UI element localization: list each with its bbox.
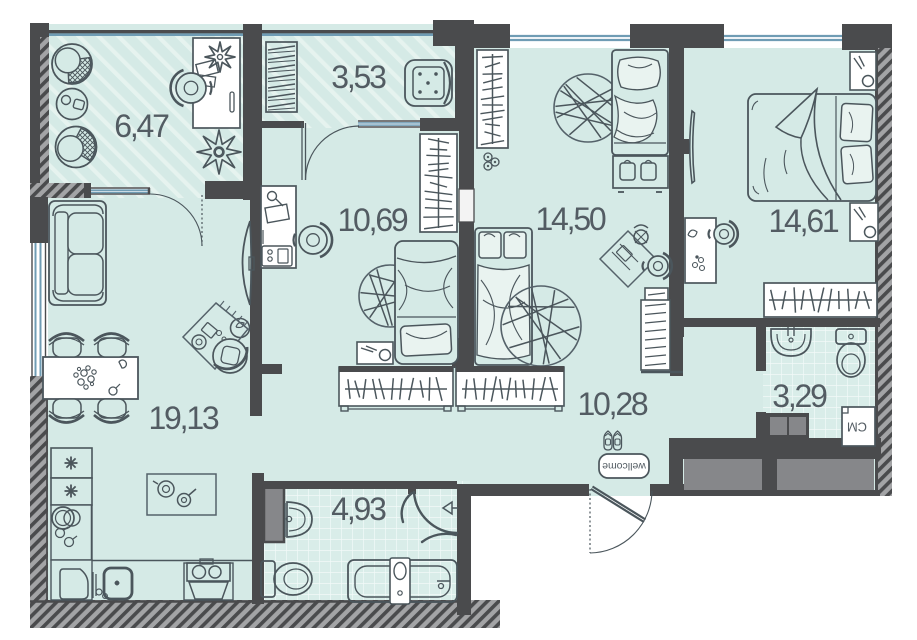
svg-text:10,69: 10,69 bbox=[337, 202, 407, 238]
svg-text:СМ: СМ bbox=[847, 420, 867, 435]
svg-text:3,53: 3,53 bbox=[331, 59, 386, 95]
svg-text:19,13: 19,13 bbox=[148, 400, 218, 436]
svg-text:4,93: 4,93 bbox=[331, 491, 386, 527]
svg-text:14,61: 14,61 bbox=[768, 203, 838, 239]
svg-text:wellcome: wellcome bbox=[602, 460, 647, 472]
svg-text:10,28: 10,28 bbox=[577, 386, 647, 422]
svg-text:14,50: 14,50 bbox=[535, 201, 605, 237]
svg-text:3,29: 3,29 bbox=[772, 378, 827, 414]
svg-text:6,47: 6,47 bbox=[114, 108, 169, 144]
